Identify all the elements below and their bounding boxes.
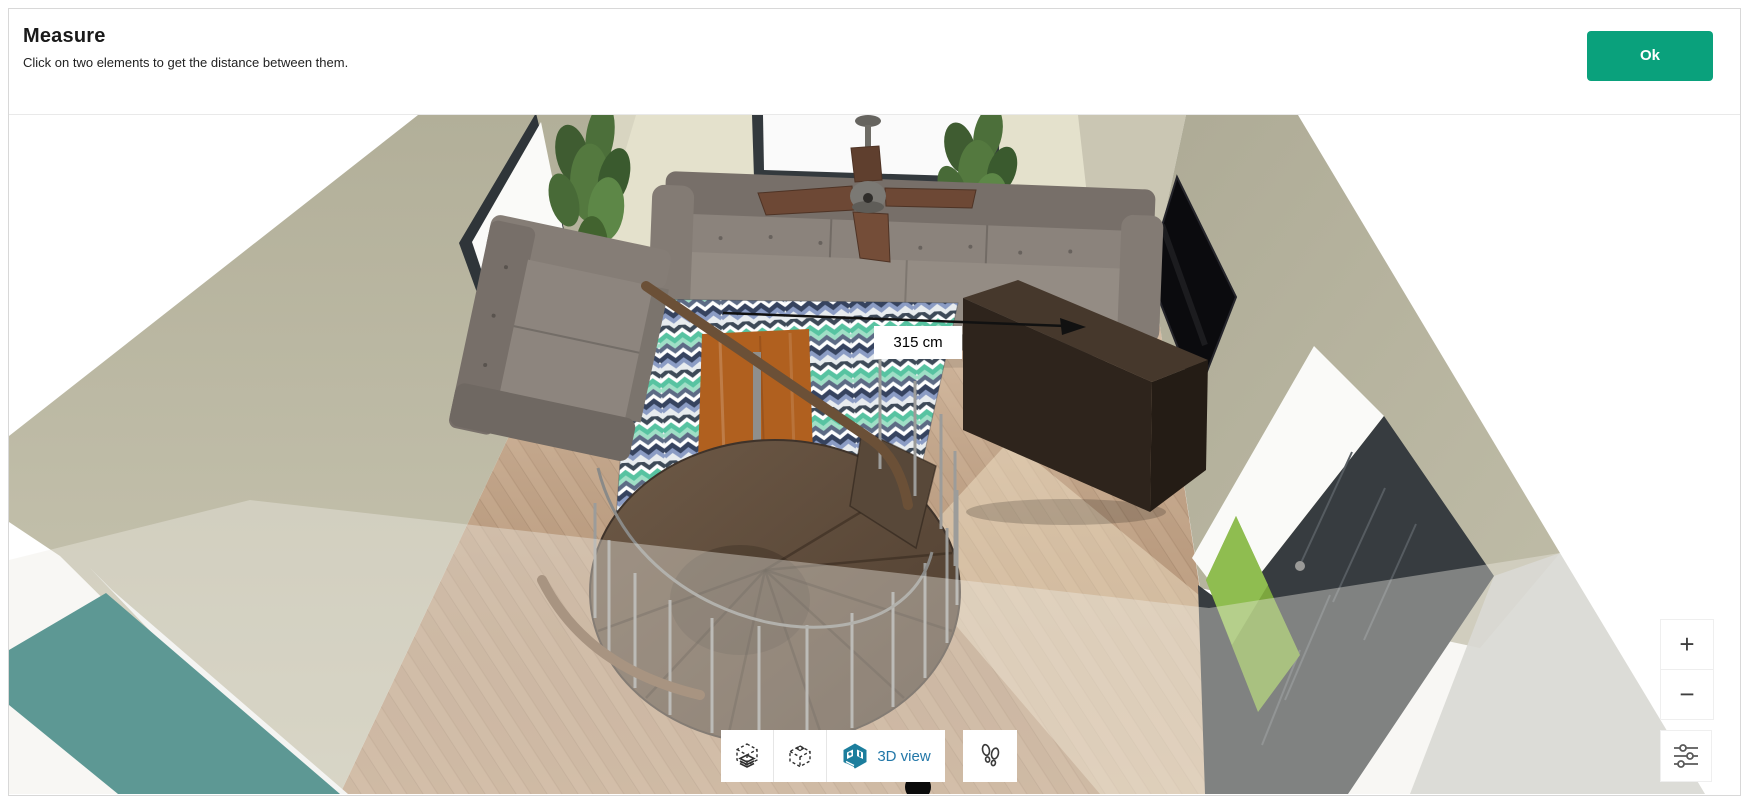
view-mode-toolbar: 3D view	[721, 730, 945, 782]
scene-render	[9, 115, 1740, 794]
floor-plan-icon	[733, 742, 761, 770]
page-subtitle: Click on two elements to get the distanc…	[23, 55, 348, 70]
3d-scene-canvas[interactable]: 315 cm	[9, 115, 1740, 794]
footprints-icon	[975, 742, 1005, 770]
ok-button[interactable]: Ok	[1587, 31, 1713, 81]
3d-view-label: 3D view	[877, 748, 930, 765]
first-person-view-button[interactable]	[963, 730, 1017, 782]
distance-label: 315 cm	[874, 326, 962, 359]
display-settings-button[interactable]	[1660, 730, 1712, 782]
zoom-in-button[interactable]: +	[1661, 620, 1713, 670]
orbit-cube-icon	[786, 742, 814, 770]
3d-cube-icon	[841, 742, 869, 770]
3d-view-button[interactable]: 3D view	[827, 730, 945, 782]
door-handle	[1295, 561, 1305, 571]
orbit-view-button[interactable]	[774, 730, 827, 782]
floor-plan-view-button[interactable]	[721, 730, 774, 782]
measure-header: Measure Click on two elements to get the…	[9, 9, 1740, 115]
zoom-controls: + −	[1660, 619, 1714, 720]
app-frame: Measure Click on two elements to get the…	[8, 8, 1741, 796]
page-title: Measure	[23, 25, 106, 48]
zoom-out-button[interactable]: −	[1661, 670, 1713, 719]
sliders-icon	[1671, 742, 1701, 770]
